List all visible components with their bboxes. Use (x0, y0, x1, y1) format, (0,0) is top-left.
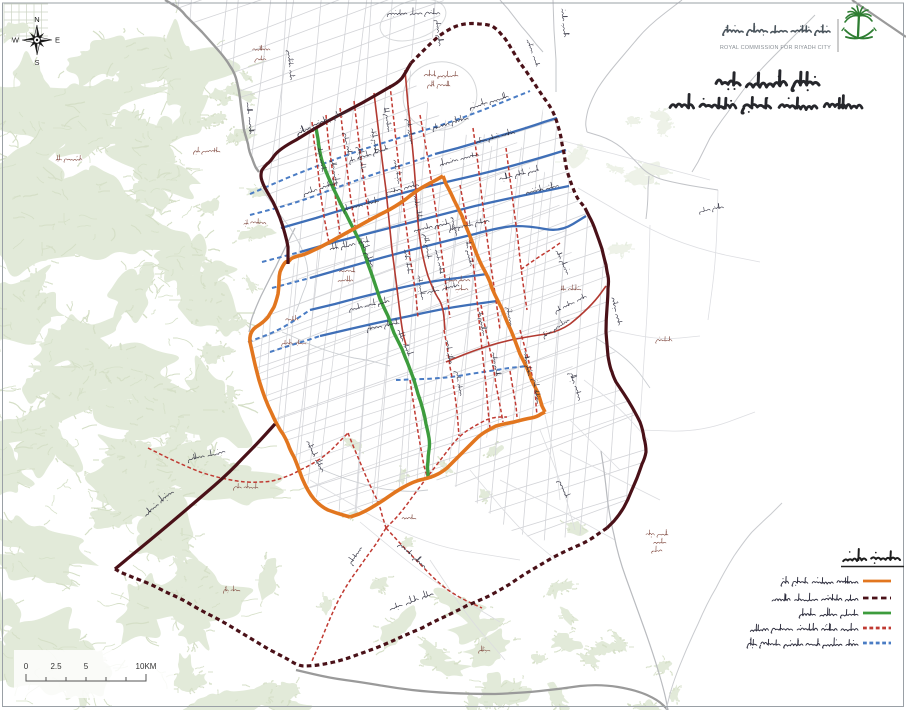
svg-text:10KM: 10KM (136, 662, 157, 671)
svg-text:W: W (12, 36, 20, 45)
svg-text:5: 5 (84, 662, 89, 671)
svg-text:E: E (55, 36, 60, 45)
svg-text:N: N (34, 15, 39, 24)
svg-text:S: S (34, 58, 39, 67)
svg-text:2.5: 2.5 (50, 662, 62, 671)
svg-text:ROYAL COMMISSION FOR RIYADH CI: ROYAL COMMISSION FOR RIYADH CITY (720, 45, 831, 51)
svg-text:0: 0 (24, 662, 29, 671)
